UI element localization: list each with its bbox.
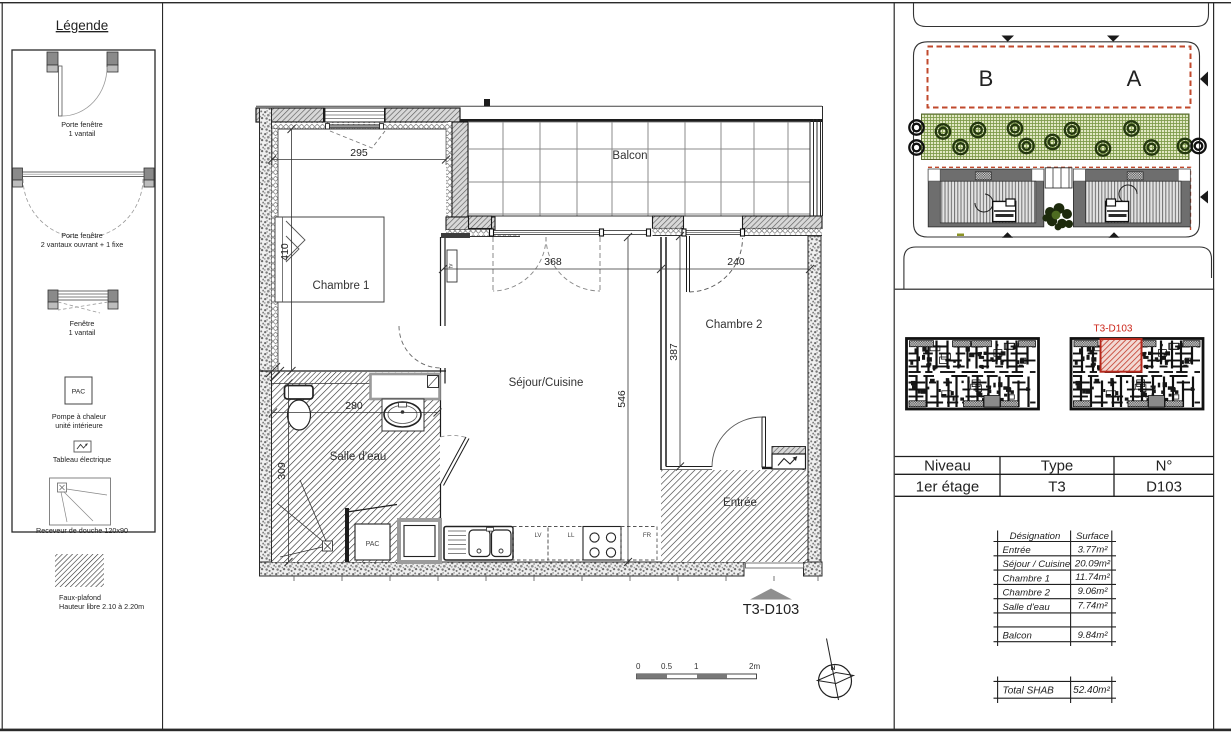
- svg-text:7.74m²: 7.74m²: [1078, 601, 1109, 612]
- svg-text:1: 1: [694, 662, 699, 671]
- svg-text:11.74m²: 11.74m²: [1075, 572, 1110, 583]
- svg-text:Niveau: Niveau: [924, 458, 971, 475]
- svg-text:Porte fenêtre: Porte fenêtre: [61, 120, 103, 129]
- svg-text:Chambre 1: Chambre 1: [313, 280, 370, 292]
- svg-text:0: 0: [636, 662, 641, 671]
- svg-text:Chambre 1: Chambre 1: [1003, 573, 1050, 584]
- svg-text:Type: Type: [1041, 458, 1074, 475]
- svg-text:unité intérieure: unité intérieure: [55, 421, 103, 430]
- svg-text:240: 240: [727, 256, 745, 268]
- svg-text:Faux-plafond: Faux-plafond: [59, 593, 101, 602]
- svg-text:2 vantaux ouvrant + 1 fixe: 2 vantaux ouvrant + 1 fixe: [41, 240, 124, 249]
- svg-text:Chambre 2: Chambre 2: [1003, 588, 1051, 599]
- svg-text:309: 309: [276, 462, 288, 480]
- svg-text:2m: 2m: [749, 662, 760, 671]
- svg-text:9.06m²: 9.06m²: [1078, 586, 1109, 597]
- svg-text:B: B: [979, 66, 994, 91]
- svg-text:387: 387: [668, 343, 680, 361]
- svg-text:368: 368: [544, 256, 562, 268]
- svg-text:Tableau électrique: Tableau électrique: [53, 455, 111, 464]
- svg-text:1er étage: 1er étage: [916, 478, 979, 495]
- svg-text:PAC: PAC: [72, 389, 86, 396]
- svg-text:PAC: PAC: [366, 541, 380, 548]
- svg-text:Salle d'eau: Salle d'eau: [330, 451, 387, 463]
- svg-text:Hauteur libre 2.10 à 2.20m: Hauteur libre 2.10 à 2.20m: [59, 602, 144, 611]
- svg-text:9.84m²: 9.84m²: [1078, 630, 1109, 641]
- svg-text:Entrée: Entrée: [723, 497, 757, 509]
- svg-text:Entrée: Entrée: [1003, 545, 1031, 556]
- svg-text:Pompe à chaleur: Pompe à chaleur: [52, 412, 107, 421]
- svg-text:N: N: [831, 665, 836, 672]
- svg-text:N°: N°: [1156, 458, 1173, 475]
- svg-text:A: A: [1127, 66, 1142, 91]
- svg-text:295: 295: [350, 147, 368, 159]
- svg-text:Séjour/Cuisine: Séjour/Cuisine: [509, 377, 584, 389]
- svg-text:T3-D103: T3-D103: [743, 602, 799, 618]
- svg-text:Chambre 2: Chambre 2: [706, 319, 763, 331]
- svg-text:Balcon: Balcon: [612, 150, 647, 162]
- svg-text:Total SHAB: Total SHAB: [1003, 686, 1055, 697]
- svg-text:546: 546: [616, 390, 628, 408]
- svg-text:Séjour / Cuisine: Séjour / Cuisine: [1003, 559, 1071, 570]
- svg-text:tv: tv: [449, 264, 455, 269]
- svg-text:280: 280: [345, 400, 363, 412]
- svg-text:3.77m²: 3.77m²: [1078, 544, 1109, 555]
- svg-text:Receveur de douche 120x90: Receveur de douche 120x90: [36, 526, 128, 535]
- svg-text:Fenêtre: Fenêtre: [70, 319, 95, 328]
- svg-text:LL: LL: [568, 532, 575, 539]
- svg-text:0.5: 0.5: [661, 662, 673, 671]
- svg-text:1 vantail: 1 vantail: [69, 328, 96, 337]
- svg-text:Désignation: Désignation: [1010, 531, 1061, 542]
- svg-text:Porte fenêtre: Porte fenêtre: [61, 231, 103, 240]
- svg-text:LV: LV: [534, 532, 542, 539]
- svg-text:T3: T3: [1048, 478, 1066, 495]
- svg-text:52.40m²: 52.40m²: [1073, 685, 1110, 696]
- svg-text:1 vantail: 1 vantail: [69, 129, 96, 138]
- svg-text:T3-D103: T3-D103: [1094, 324, 1133, 335]
- svg-text:Légende: Légende: [56, 18, 109, 33]
- svg-text:20.09m²: 20.09m²: [1074, 559, 1111, 570]
- svg-text:FR: FR: [643, 532, 652, 539]
- svg-text:Balcon: Balcon: [1003, 630, 1032, 641]
- svg-text:410: 410: [279, 243, 291, 261]
- svg-text:Surface: Surface: [1076, 531, 1109, 542]
- svg-text:D103: D103: [1146, 478, 1182, 495]
- svg-text:Salle d'eau: Salle d'eau: [1003, 602, 1051, 613]
